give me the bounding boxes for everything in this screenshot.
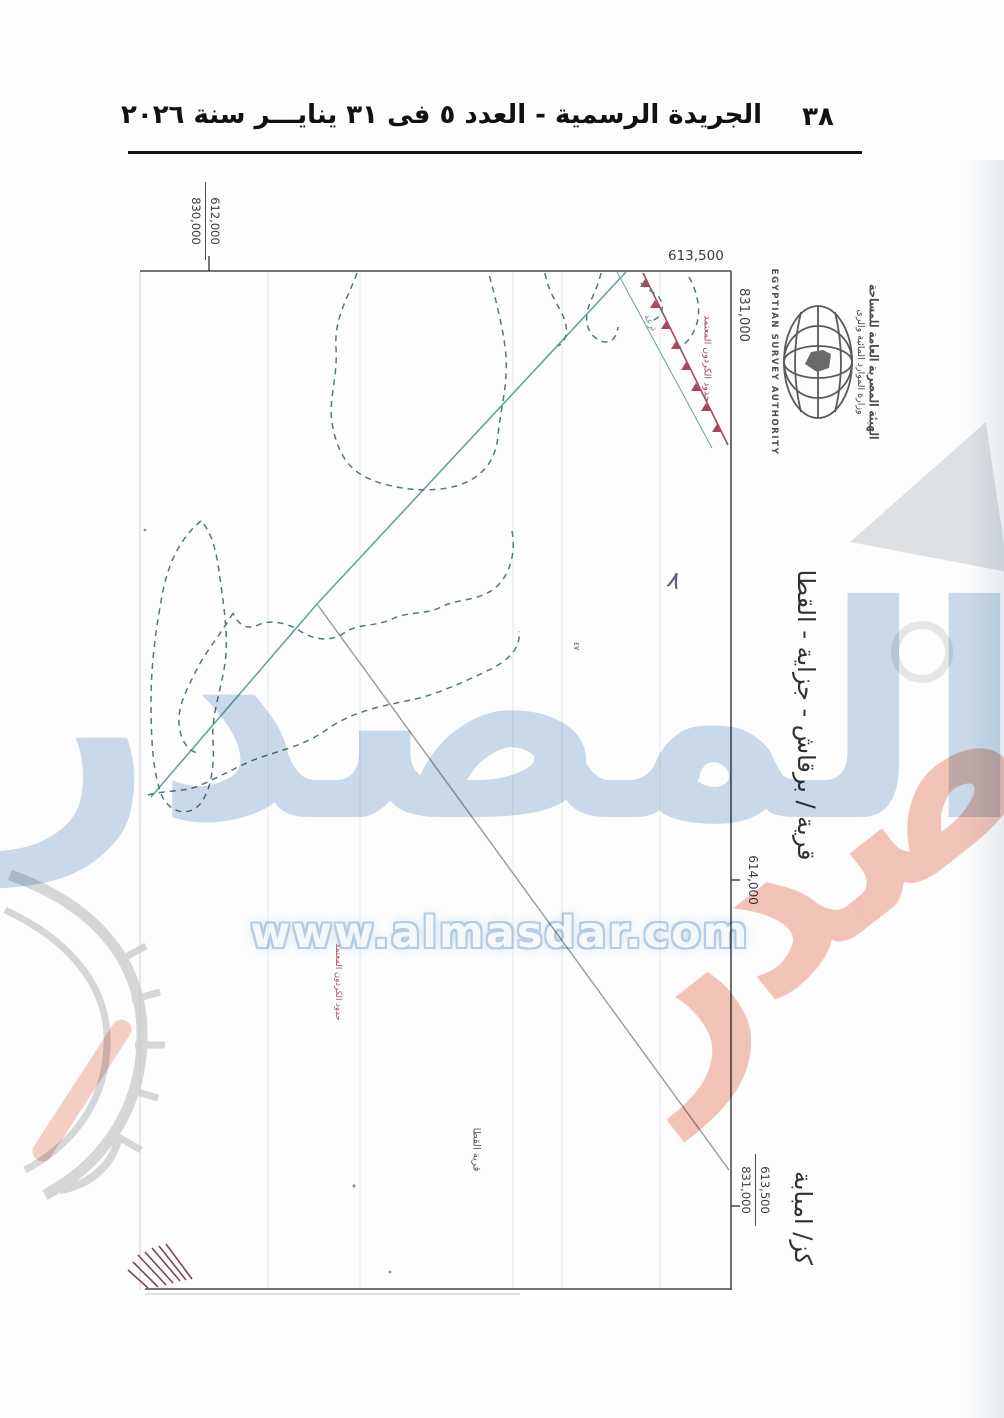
map-title-region: قرية / برقاش - جزاية - القطا [790, 510, 820, 920]
grid-coord-right-mid: 614,000 [744, 850, 760, 910]
coord-value: 830,000 [187, 182, 205, 260]
grid-coord-bottom-right: 613,500 831,000 [738, 1154, 774, 1226]
grid-coord-right-upper: 831,000 [735, 283, 751, 347]
branch-boundary-line [317, 604, 729, 1170]
coord-value: 613,500 [755, 1154, 774, 1226]
scan-fold-lines [268, 272, 660, 1290]
map-frame [140, 271, 731, 1294]
hatch-marks [128, 1244, 192, 1288]
logo-arabic-ministry: وزارة الموارد المائية والرى [855, 309, 866, 414]
gazette-scan-page: { "header": { "title": "الجريدة الرسمية … [0, 0, 1004, 1418]
map-title-district: كز/ امبابة [787, 1143, 817, 1293]
village-label-small: قرية القطا [469, 1122, 482, 1178]
plot-number-label: ٤٧ [571, 637, 581, 655]
globe-emblem-icon [781, 302, 855, 422]
grid-coord-top-right: 613,500 [668, 248, 724, 264]
coord-value: 831,000 [737, 1154, 755, 1226]
canal-axis-line [151, 272, 712, 797]
dashed-parcel-boundaries [148, 273, 699, 812]
cordon-annotation-mid: حدود الكردون المعتمد [331, 943, 343, 1021]
grid-coord-top-left: 612,000 830,000 [184, 182, 224, 260]
cordon-annotation-top: حدود الكردون المعتمد [700, 300, 713, 418]
survey-map-linework [0, 0, 1004, 1418]
logo-arabic-authority: الهيئة المصرية العامة للمساحة [866, 284, 881, 440]
logo-english-caption: EGYPTIAN SURVEY AUTHORITY [769, 269, 779, 456]
cordon-line [640, 273, 728, 445]
survey-authority-logo: الهيئة المصرية العامة للمساحة وزارة المو… [752, 262, 880, 462]
coord-value: 612,000 [205, 182, 224, 260]
